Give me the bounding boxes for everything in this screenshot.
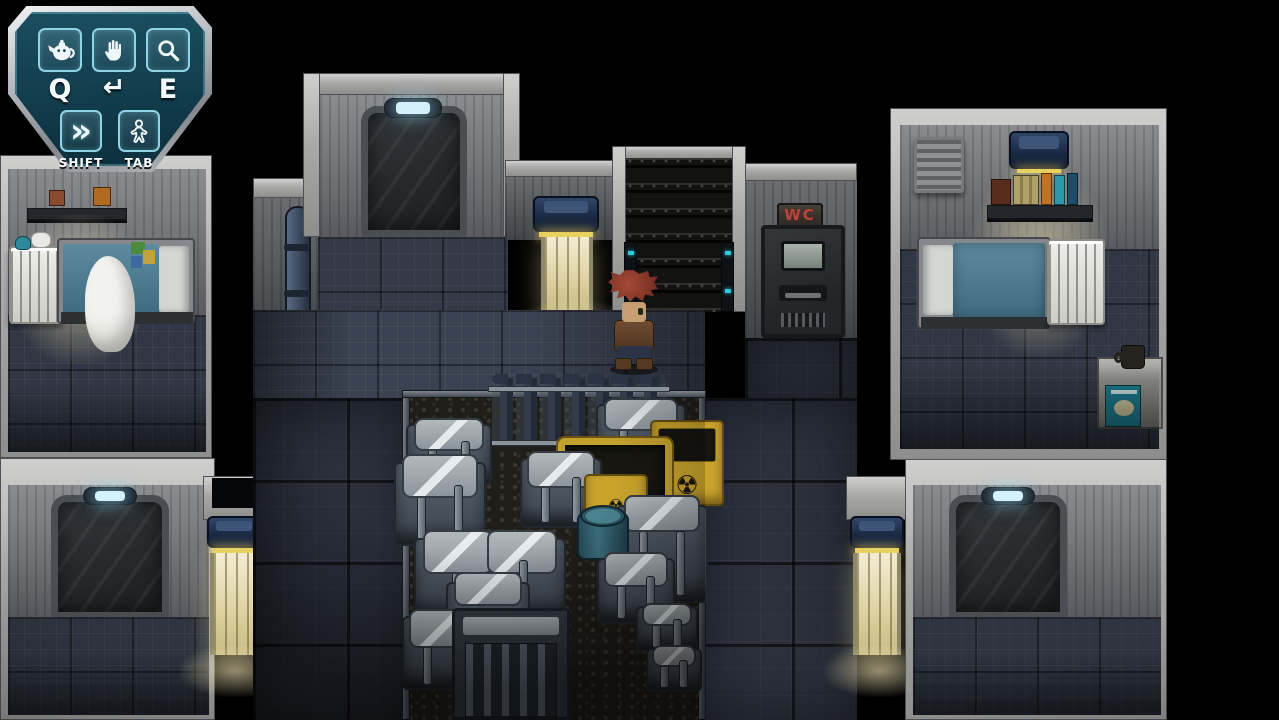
right-shelf-lamp bbox=[1009, 131, 1069, 169]
clutter-blue bbox=[131, 256, 142, 268]
hud-examine-button[interactable] bbox=[146, 28, 190, 72]
character-boot bbox=[615, 358, 632, 370]
magnifier-examine-icon bbox=[154, 36, 182, 64]
lit-doorway-center[interactable] bbox=[530, 194, 604, 314]
hud-controls-panel: Q ↵ E » SHIFT TAB bbox=[8, 6, 212, 172]
teapot-item-icon bbox=[45, 35, 75, 65]
wall-vent bbox=[914, 137, 964, 193]
hud-run-button[interactable]: » bbox=[60, 110, 102, 152]
hand-interact-icon bbox=[100, 36, 128, 64]
poster-teal bbox=[1105, 385, 1141, 427]
wc-front-floor bbox=[745, 338, 857, 402]
right-bed-rail bbox=[921, 317, 1049, 329]
room-bottom-right bbox=[905, 458, 1167, 720]
shelf-book-orange bbox=[1041, 173, 1052, 205]
wc-door[interactable] bbox=[761, 225, 845, 338]
hud-label-shift: SHIFT bbox=[46, 156, 116, 170]
shelf-item-crate bbox=[93, 187, 111, 206]
room-bottom-left bbox=[0, 458, 215, 720]
crib-toy-teal bbox=[15, 236, 31, 250]
bl-sliding-door[interactable] bbox=[51, 495, 169, 619]
top-door-structure bbox=[303, 73, 520, 237]
wc-sign-label: WC bbox=[784, 206, 816, 224]
shelf-book-navy bbox=[1067, 173, 1078, 205]
shelf-item-box bbox=[49, 190, 65, 206]
hud-key-q: Q bbox=[38, 74, 82, 105]
hud-interact-button[interactable] bbox=[92, 28, 136, 72]
hud-key-enter: ↵ bbox=[92, 72, 136, 103]
radiator bbox=[1047, 239, 1105, 325]
br-room-floor bbox=[913, 617, 1161, 715]
br-door-lamp bbox=[981, 487, 1035, 505]
mug bbox=[1121, 345, 1145, 369]
character-boot bbox=[636, 358, 653, 370]
doorway-lamp bbox=[850, 516, 904, 548]
right-bed-pillow bbox=[923, 245, 953, 315]
hud-key-e: E bbox=[146, 74, 190, 105]
room-left-bedroom bbox=[0, 155, 212, 458]
doorway-light-column bbox=[853, 553, 901, 655]
stair-rail-right bbox=[721, 242, 734, 312]
hud-label-tab: TAB bbox=[111, 156, 167, 170]
top-door-lamp bbox=[384, 98, 442, 118]
nightstand bbox=[1097, 357, 1163, 429]
wc-sign: WC bbox=[777, 203, 823, 227]
fast-forward-icon: » bbox=[70, 114, 92, 148]
person-menu-icon bbox=[125, 117, 153, 145]
clutter-yellow bbox=[143, 250, 155, 264]
right-wall-shelf bbox=[987, 205, 1093, 219]
doorway-light-column bbox=[210, 553, 258, 655]
left-wall-shelf bbox=[27, 208, 127, 220]
shelf-book-teal bbox=[1054, 175, 1065, 205]
top-door-front-floor bbox=[318, 237, 508, 313]
storage-left-wall bbox=[253, 398, 413, 720]
br-sliding-door[interactable] bbox=[949, 495, 1067, 619]
barred-cabinet bbox=[452, 608, 570, 720]
wc-door-vent bbox=[781, 313, 825, 327]
wc-door-handle bbox=[779, 285, 827, 301]
right-bed-frame bbox=[917, 237, 1051, 329]
shelf-books-tan bbox=[1013, 175, 1039, 205]
right-bed-mattress bbox=[953, 243, 1045, 319]
character-face bbox=[622, 302, 646, 322]
bl-room-floor bbox=[8, 617, 209, 715]
player-character[interactable] bbox=[604, 270, 664, 376]
bl-door-lamp bbox=[83, 487, 137, 505]
hud-item-button[interactable] bbox=[38, 28, 82, 72]
shelf-book-darkred bbox=[991, 179, 1011, 205]
room-right-bedroom bbox=[890, 108, 1167, 460]
doorway-lamp bbox=[533, 196, 599, 232]
top-sliding-door[interactable] bbox=[361, 106, 467, 237]
lit-doorway-right[interactable] bbox=[846, 476, 908, 660]
game-screen: WC ☢ ☢ bbox=[0, 0, 1279, 720]
cargo-crate bbox=[646, 648, 702, 692]
wc-block: WC bbox=[745, 163, 857, 338]
hud-menu-button[interactable] bbox=[118, 110, 160, 152]
doorway-light-column bbox=[541, 237, 593, 311]
wc-door-window bbox=[781, 241, 825, 271]
crib bbox=[9, 246, 63, 324]
left-bed-pillow bbox=[159, 246, 189, 312]
crib-toy-white bbox=[31, 232, 51, 248]
